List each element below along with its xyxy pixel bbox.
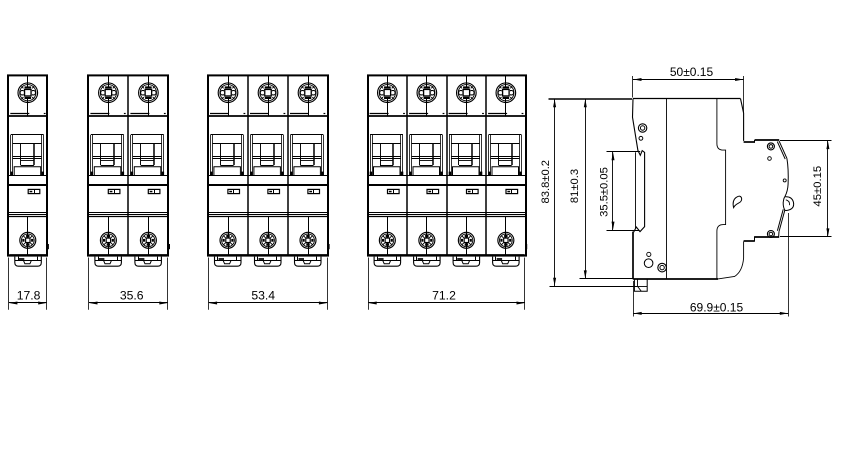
svg-text:50±0.15: 50±0.15 (670, 65, 714, 79)
svg-text:35.5±0.05: 35.5±0.05 (599, 167, 611, 217)
svg-text:53.4: 53.4 (251, 288, 275, 302)
svg-text:69.9±0.15: 69.9±0.15 (690, 301, 744, 315)
svg-text:83.8±0.2: 83.8±0.2 (540, 160, 552, 203)
svg-text:35.6: 35.6 (120, 288, 144, 302)
svg-text:45±0.15: 45±0.15 (812, 166, 824, 207)
svg-text:17.8: 17.8 (17, 288, 41, 302)
svg-text:71.2: 71.2 (432, 288, 456, 302)
svg-text:81±0.3: 81±0.3 (569, 169, 581, 203)
